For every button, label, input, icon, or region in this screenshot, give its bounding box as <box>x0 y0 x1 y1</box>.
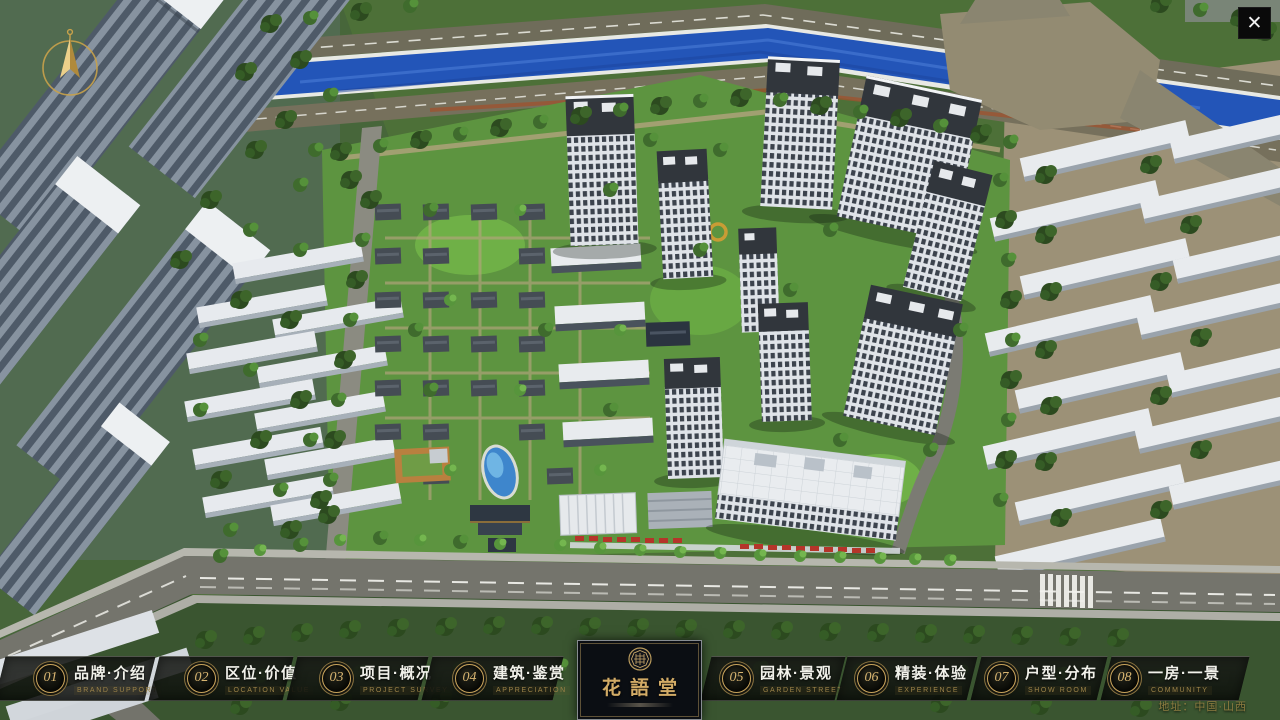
menu-item-project-overview[interactable]: 03 项目·概况 PROJECT SURVEY <box>292 656 423 701</box>
menu-label-en: APPRECIATION <box>493 686 570 695</box>
menu-label-zh: 品牌·介绍 <box>74 662 161 683</box>
menu-label-en: EXPERIENCE <box>895 686 962 695</box>
close-button[interactable]: ✕ <box>1238 7 1271 39</box>
menu-label-en: BRAND SUPPORT <box>74 686 161 695</box>
menu-item-brand-intro[interactable]: 01 品牌·介绍 BRAND SUPPORT <box>0 656 150 701</box>
menu-item-interior-experience[interactable]: 06 精装·体验 EXPERIENCE <box>842 656 972 701</box>
menu-label-zh: 户型·分布 <box>1025 662 1098 683</box>
menu-number-badge: 02 <box>187 664 216 693</box>
logo-panel[interactable]: 花語堂 <box>577 640 702 720</box>
clubhouse-orange <box>394 446 451 483</box>
menu-item-one-room-one-view[interactable]: 08 一房·一景 COMMUNITY <box>1106 656 1244 701</box>
brand-seal-icon <box>627 646 653 672</box>
menu-number-badge: 05 <box>722 664 751 693</box>
menu-item-location-value[interactable]: 02 区位·价值 LOCATION VALUE <box>154 656 288 701</box>
menu-number-badge: 07 <box>987 664 1016 693</box>
menu-label-zh: 园林·景观 <box>760 662 846 683</box>
menu-number-badge: 06 <box>857 664 886 693</box>
menu-label-en: GARDEN STREET <box>760 686 846 695</box>
menu-label-zh: 精装·体验 <box>895 662 968 683</box>
menu-number-badge: 08 <box>1110 664 1139 693</box>
brand-name: 花語堂 <box>593 673 686 700</box>
menu-item-landscape[interactable]: 05 园林·景观 GARDEN STREET <box>706 656 840 701</box>
masterplan-render <box>0 0 1280 720</box>
menu-label-en: COMMUNITY <box>1148 686 1212 695</box>
menu-number-badge: 01 <box>36 664 65 693</box>
menu-number-badge: 04 <box>455 664 484 693</box>
menu-number-badge: 03 <box>322 664 351 693</box>
brand-subtitle-blur <box>607 703 673 707</box>
menu-item-floorplan-distribution[interactable]: 07 户型·分布 SHOW ROOM <box>976 656 1102 701</box>
central-pavilion <box>646 321 691 347</box>
menu-label-en: SHOW ROOM <box>1025 686 1091 695</box>
close-icon: ✕ <box>1247 12 1263 34</box>
menu-label-zh: 建筑·鉴赏 <box>493 662 570 683</box>
menu-item-architecture[interactable]: 04 建筑·鉴赏 APPRECIATION <box>427 656 558 701</box>
project-address: 地址：中国·山西 <box>1158 698 1247 714</box>
menu-label-zh: 一房·一景 <box>1148 662 1221 683</box>
masterplan-screen: ✕ 01 品牌·介绍 BRAND SUPPORT 02 区位·价值 LOCATI… <box>0 0 1280 720</box>
